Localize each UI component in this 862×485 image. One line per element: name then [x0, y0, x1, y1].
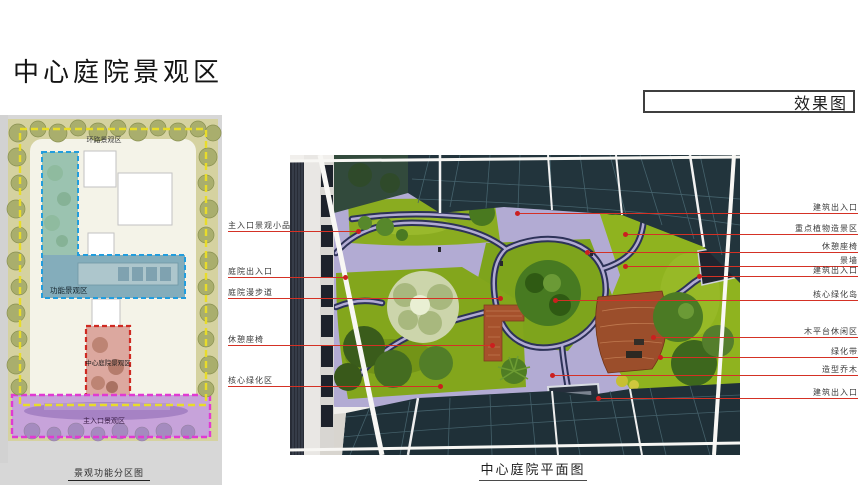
- leader-dot: [343, 275, 348, 280]
- annotation-label: 核心绿化区: [228, 375, 273, 386]
- leader-dot: [498, 296, 503, 301]
- annotation-label: 建筑出入口: [813, 202, 858, 213]
- leader-line: [228, 345, 492, 346]
- leader-dot: [596, 396, 601, 401]
- leader-dot: [658, 355, 663, 360]
- rendering-caption: 中心庭院平面图: [479, 459, 587, 481]
- leader-dot: [623, 264, 628, 269]
- zone-label-functional: 功能景观区: [50, 285, 88, 295]
- annotation-label: 庭院出入口: [228, 266, 273, 277]
- plan-zone-central-courtyard: 中心庭院景观区: [85, 326, 131, 398]
- leader-line: [228, 277, 345, 278]
- leader-line: [660, 357, 858, 358]
- leader-dot: [553, 298, 558, 303]
- annotation-label: 主入口景观小品: [228, 220, 291, 231]
- annotation-label: 木平台休闲区: [804, 326, 858, 337]
- leader-line: [228, 231, 358, 232]
- site-plan-caption: 景观功能分区图: [68, 466, 150, 481]
- zone-label-central: 中心庭院景观区: [85, 358, 131, 367]
- zone-label-ring: 环路景观区: [87, 135, 122, 144]
- annotation-label: 核心绿化岛: [813, 289, 858, 300]
- annotation-label: 庭院漫步道: [228, 287, 273, 298]
- site-plan-panel: 功能景观区 中心庭院景观区 主入口: [0, 115, 222, 485]
- leader-dot: [550, 373, 555, 378]
- slide: 中心庭院景观区 效果图: [0, 0, 862, 485]
- leader-line: [552, 375, 858, 376]
- courtyard-rendering: [290, 155, 740, 455]
- leader-dot: [651, 335, 656, 340]
- leader-dot: [356, 229, 361, 234]
- leader-line: [228, 298, 500, 299]
- corner-label: 效果图: [794, 90, 848, 114]
- leader-line: [598, 398, 858, 399]
- plan-zone-entrance: 主入口景观区: [12, 395, 210, 441]
- zone-label-entrance: 主入口景观区: [83, 416, 125, 425]
- courtyard-rendering-drawing: [290, 155, 740, 455]
- leader-line: [653, 337, 858, 338]
- leader-dot: [490, 343, 495, 348]
- leader-line: [699, 276, 858, 277]
- leader-line: [517, 213, 858, 214]
- annotation-label: 重点植物造景区: [795, 223, 858, 234]
- corner-label-box: 效果图: [643, 90, 855, 113]
- brick-terrace-right: [596, 291, 667, 373]
- leader-dot: [697, 274, 702, 279]
- site-plan-drawing: 功能景观区 中心庭院景观区 主入口: [0, 115, 222, 463]
- leader-line: [625, 234, 858, 235]
- annotation-label: 造型乔木: [822, 364, 858, 375]
- annotation-label: 建筑出入口: [813, 265, 858, 276]
- leader-dot: [438, 384, 443, 389]
- leader-dot: [585, 250, 590, 255]
- page-title: 中心庭院景观区: [13, 52, 223, 89]
- annotation-label: 休憩座椅: [228, 334, 264, 345]
- annotation-label: 建筑出入口: [813, 387, 858, 398]
- leader-dot: [623, 232, 628, 237]
- leader-line: [228, 386, 440, 387]
- leader-dot: [515, 211, 520, 216]
- annotation-label: 休憩座椅: [822, 241, 858, 252]
- leader-line: [587, 252, 858, 253]
- leader-line: [555, 300, 858, 301]
- annotation-label: 绿化带: [831, 346, 858, 357]
